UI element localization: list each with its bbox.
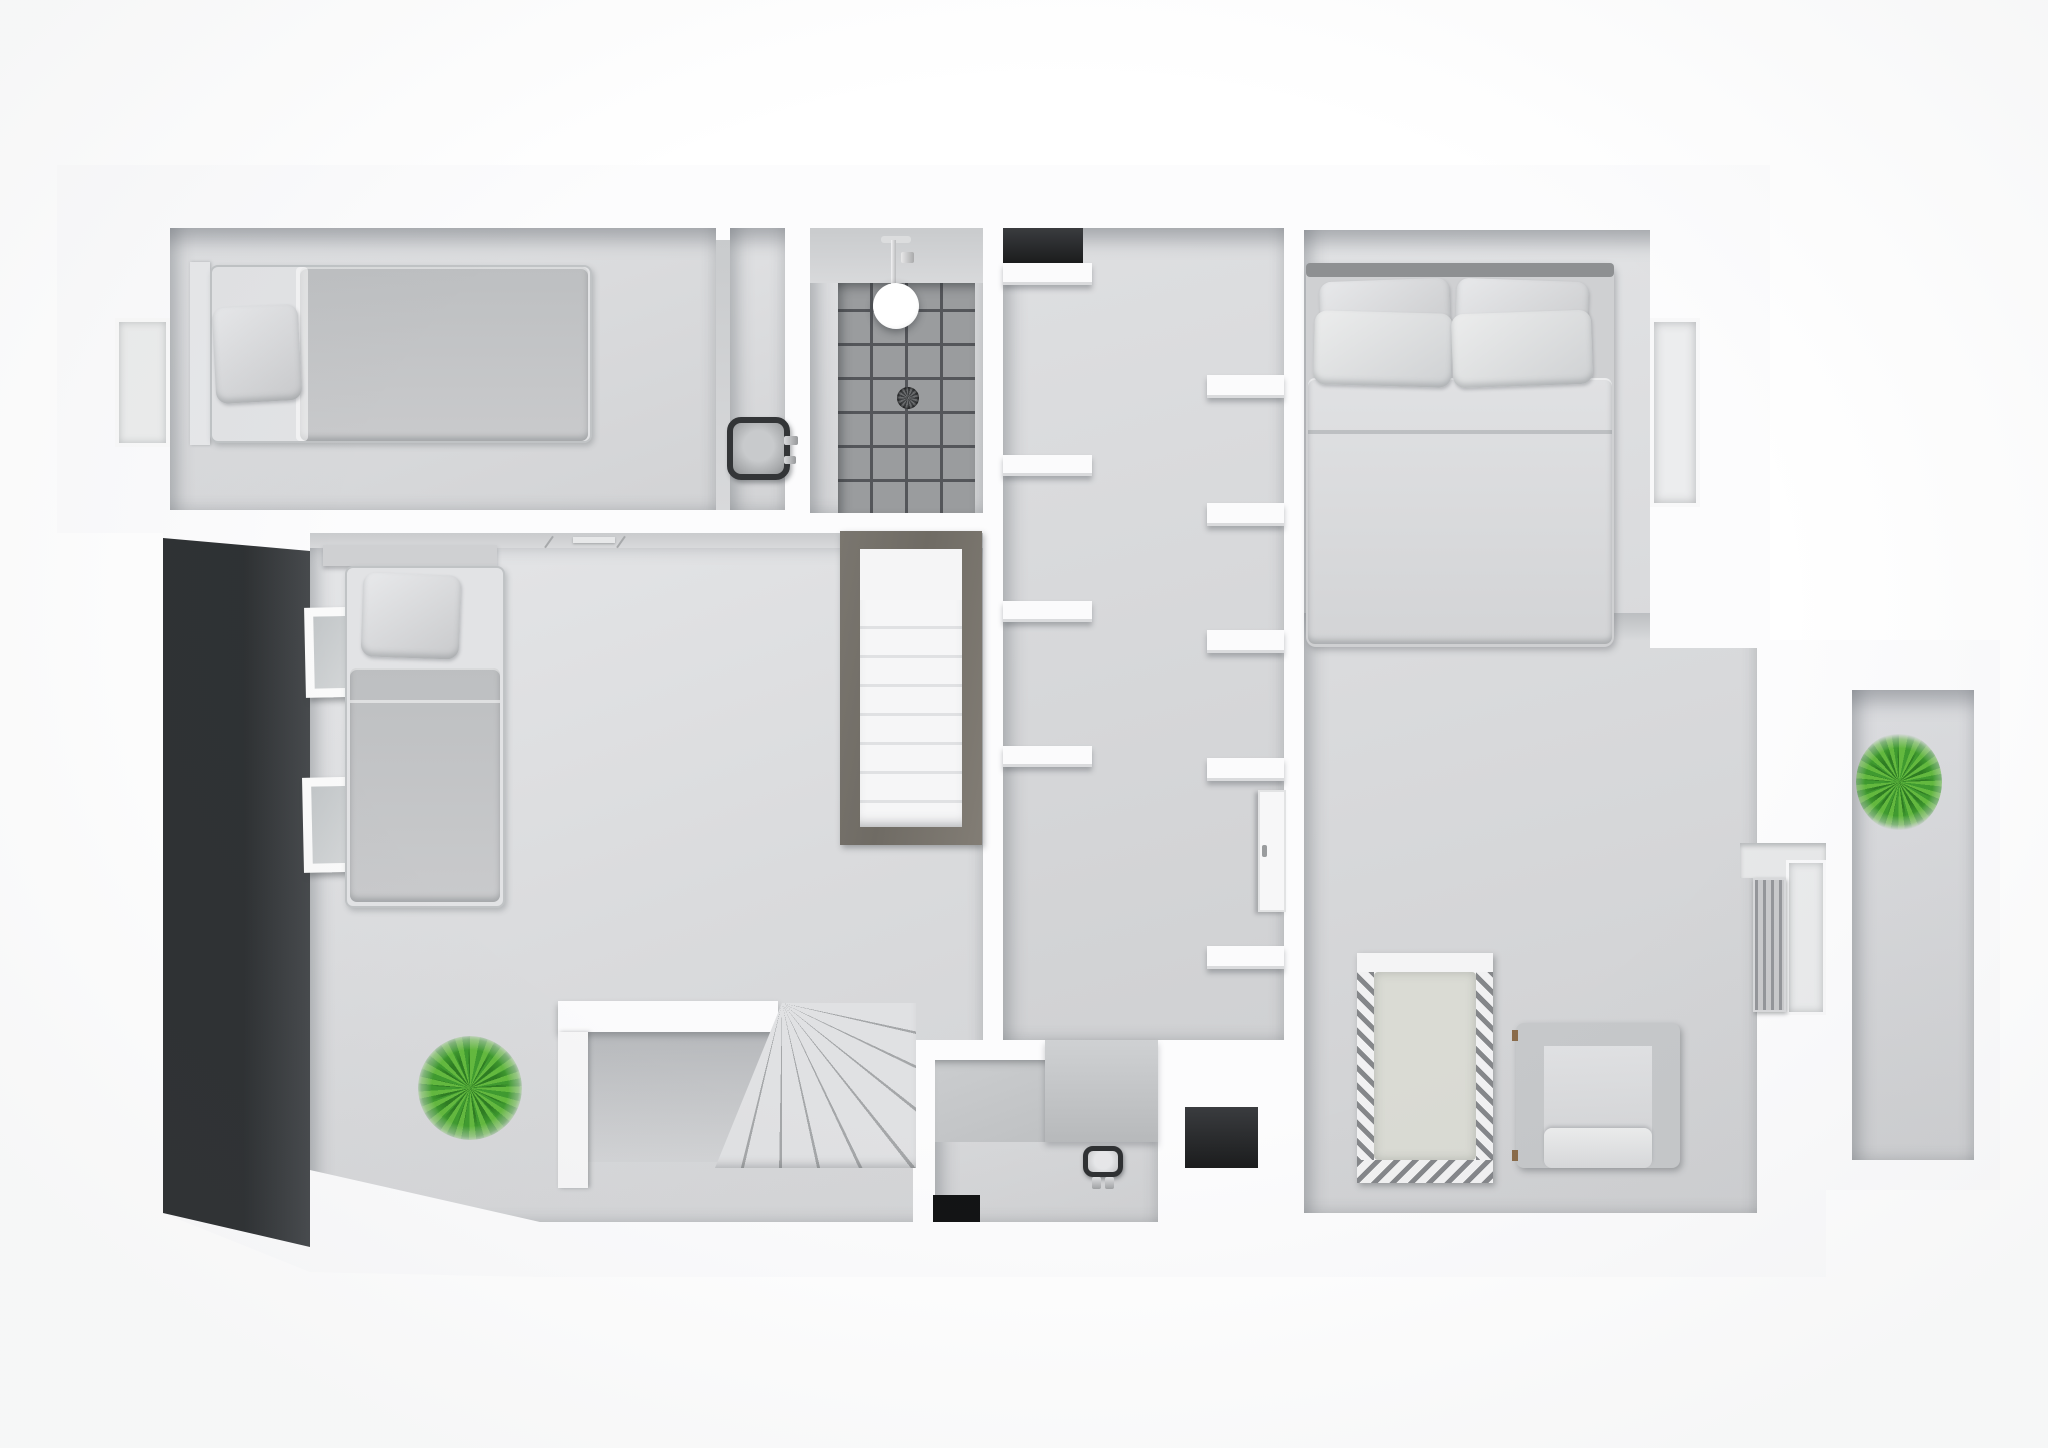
- shower-head-icon: [873, 283, 919, 329]
- double-bed-pillow-front-left: [1313, 310, 1453, 388]
- bed2-duvet: [350, 668, 500, 902]
- closet-shelf-right-2: [1207, 503, 1284, 526]
- plant-icon: [418, 1036, 522, 1140]
- bed1-headboard: [190, 262, 210, 445]
- toilet-hinge-right: [1105, 1177, 1114, 1189]
- desk-leg: [558, 1032, 588, 1188]
- door-track: [573, 537, 615, 543]
- closet-shelf-left-2: [1003, 455, 1092, 476]
- closet-shelf-right-3: [1207, 630, 1284, 653]
- washbasin: [727, 417, 790, 480]
- shower-arm-mount: [881, 236, 911, 243]
- crib-rail-right: [1476, 972, 1493, 1163]
- closet-shelf-left-4: [1003, 746, 1092, 767]
- balcony-plant-icon: [1856, 733, 1942, 831]
- closet-shelf-right-4: [1207, 758, 1284, 781]
- bed2-pillow: [361, 572, 462, 659]
- floor-drain-icon: [897, 387, 919, 409]
- radiator-icon: [1753, 878, 1786, 1012]
- floorplan-canvas: [0, 0, 2048, 1448]
- armchair-foot-2: [1512, 1150, 1518, 1161]
- bed1-pillow: [212, 304, 303, 404]
- armchair-cushion-front: [1544, 1128, 1652, 1168]
- closet-shelf-right-1: [1207, 375, 1284, 398]
- armchair-foot-1: [1512, 1030, 1518, 1041]
- double-bed-headboard: [1306, 263, 1614, 277]
- nursery-window-niche: [1786, 860, 1826, 1015]
- cabinet-handle-icon: [1262, 845, 1267, 857]
- bottom-door-gap: [933, 1195, 980, 1222]
- closet-shelf-left-3: [1003, 601, 1092, 622]
- washbasin-faucet: [784, 436, 798, 445]
- bedroom1-window: [115, 318, 170, 447]
- staircase-treads: [860, 600, 962, 827]
- wc-wall-mass: [1045, 1040, 1158, 1142]
- master-window-niche: [1650, 318, 1700, 507]
- double-bed-duvet-fold: [1308, 430, 1612, 434]
- closet-shelf-right-5: [1207, 946, 1284, 969]
- desk-top: [558, 1001, 778, 1032]
- bed1-duvet: [300, 267, 588, 441]
- crib-rail-left: [1357, 972, 1374, 1163]
- closet-shelf-left-1: [1003, 263, 1092, 285]
- dark-accent-wall: [163, 538, 310, 1249]
- wc-closet-floor: [935, 1060, 1045, 1142]
- toilet-hinge-left: [1092, 1177, 1101, 1189]
- double-bed-duvet: [1308, 378, 1612, 644]
- crib-rail-bottom: [1357, 1160, 1493, 1183]
- crib-mattress: [1374, 972, 1476, 1160]
- toilet-icon: [1083, 1146, 1123, 1177]
- hallway-dark-doorway: [1003, 228, 1083, 263]
- washbasin-handle: [784, 456, 796, 464]
- bed2-headboard-shelf: [323, 545, 497, 566]
- shower-valve: [901, 252, 914, 263]
- bed2-duvet-fold: [350, 700, 500, 703]
- double-bed-pillow-front-right: [1451, 310, 1593, 389]
- wc-side-doorway: [1185, 1107, 1258, 1168]
